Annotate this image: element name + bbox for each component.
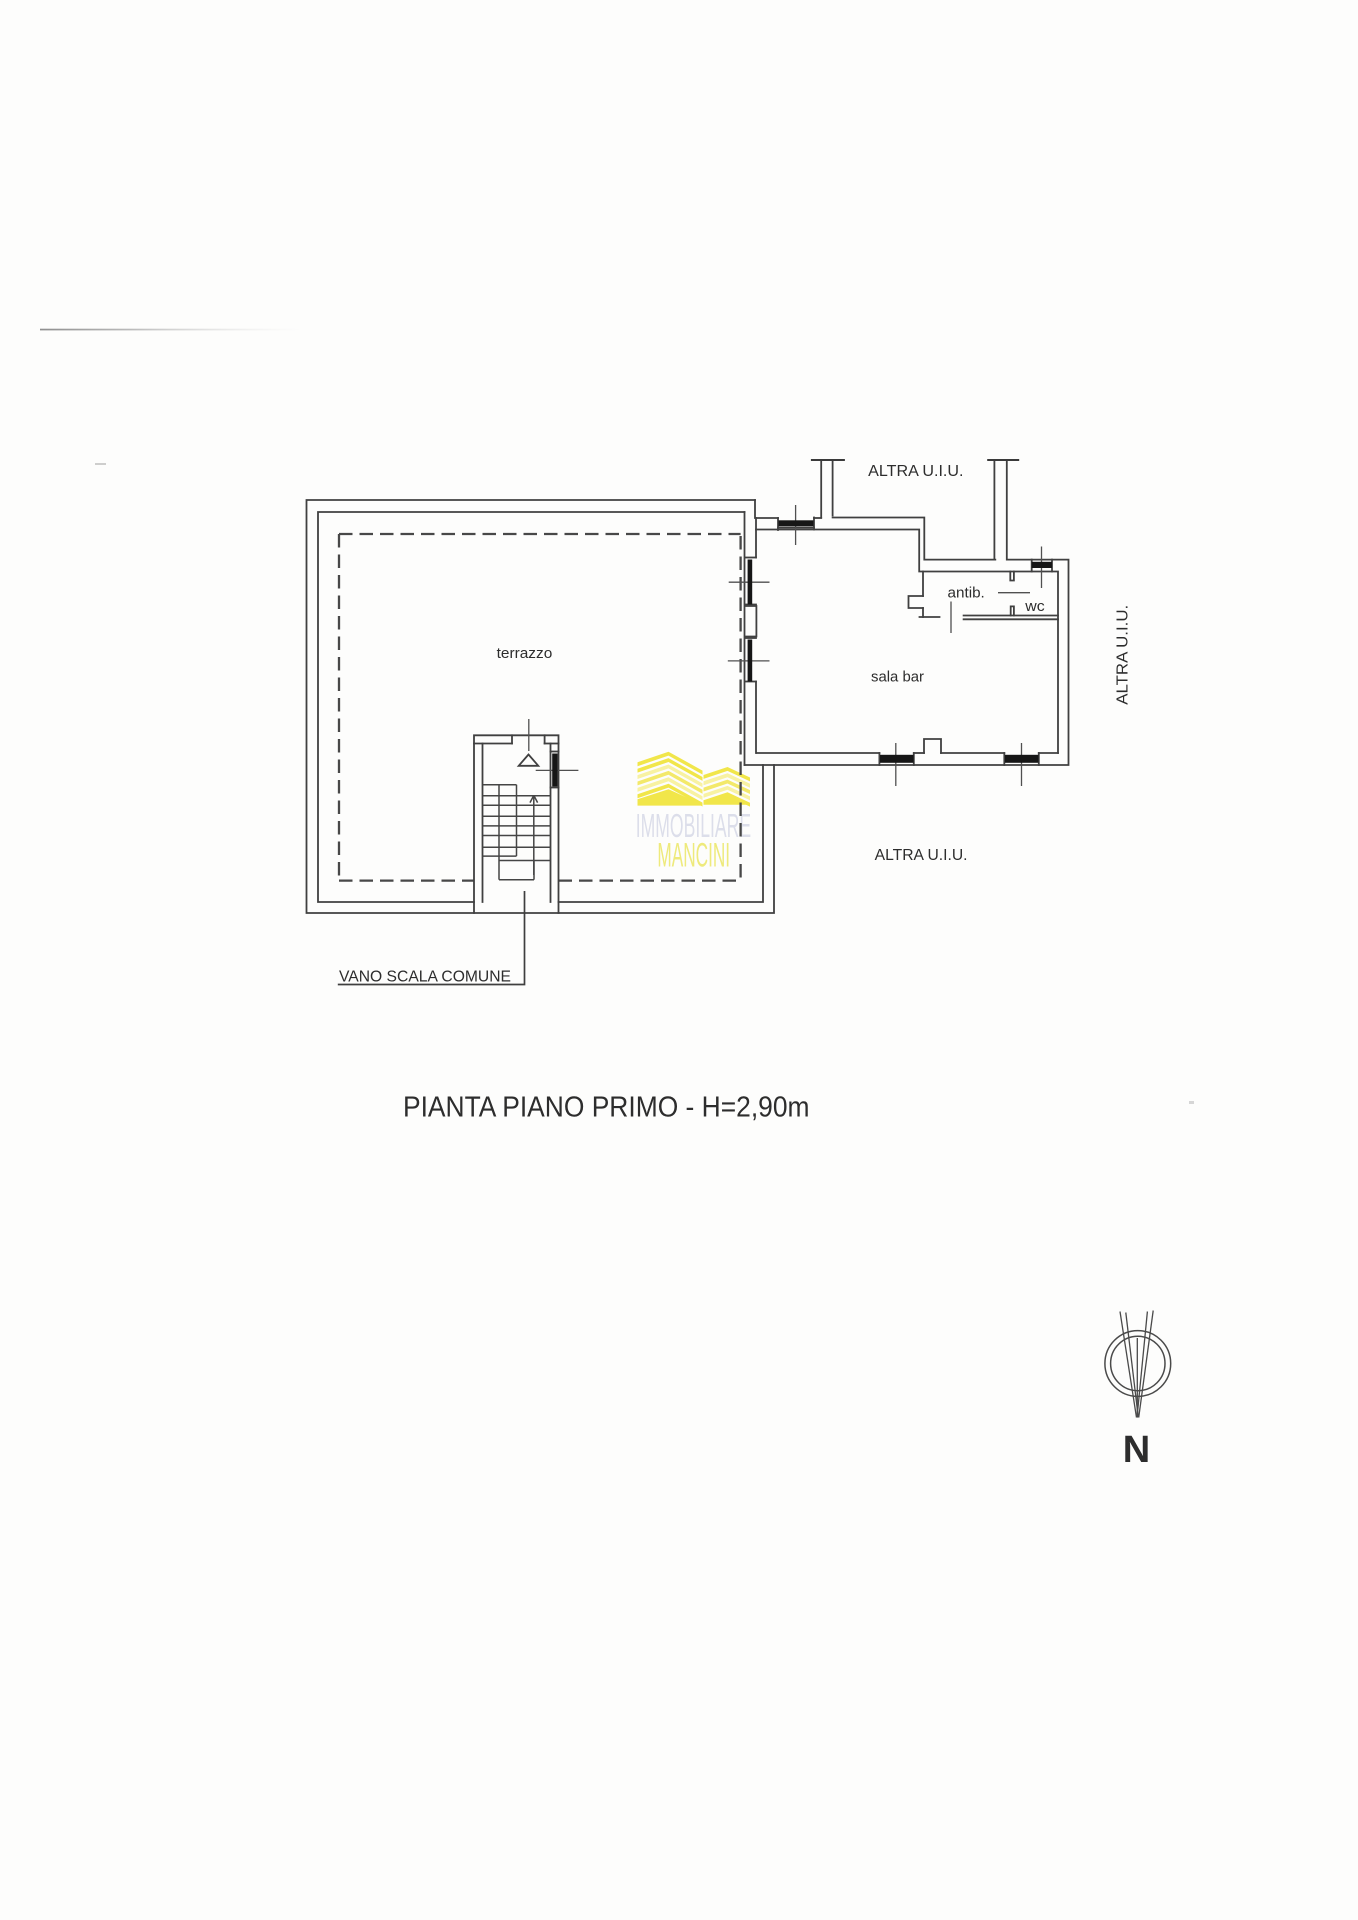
- svg-text:N: N: [1123, 1429, 1150, 1471]
- svg-text:ALTRA U.I.U.: ALTRA U.I.U.: [1115, 605, 1132, 705]
- svg-text:ALTRA U.I.U.: ALTRA U.I.U.: [868, 463, 963, 480]
- svg-text:VANO SCALA COMUNE: VANO SCALA COMUNE: [339, 969, 511, 986]
- svg-text:sala bar: sala bar: [871, 669, 924, 686]
- svg-text:wc: wc: [1024, 599, 1044, 615]
- svg-text:PIANTA PIANO PRIMO - H=2,90m: PIANTA PIANO PRIMO - H=2,90m: [403, 1092, 810, 1124]
- svg-text:MANCINI: MANCINI: [657, 837, 730, 875]
- svg-text:antib.: antib.: [948, 586, 985, 602]
- svg-text:terrazzo: terrazzo: [497, 645, 553, 662]
- svg-text:ALTRA U.I.U.: ALTRA U.I.U.: [875, 847, 968, 864]
